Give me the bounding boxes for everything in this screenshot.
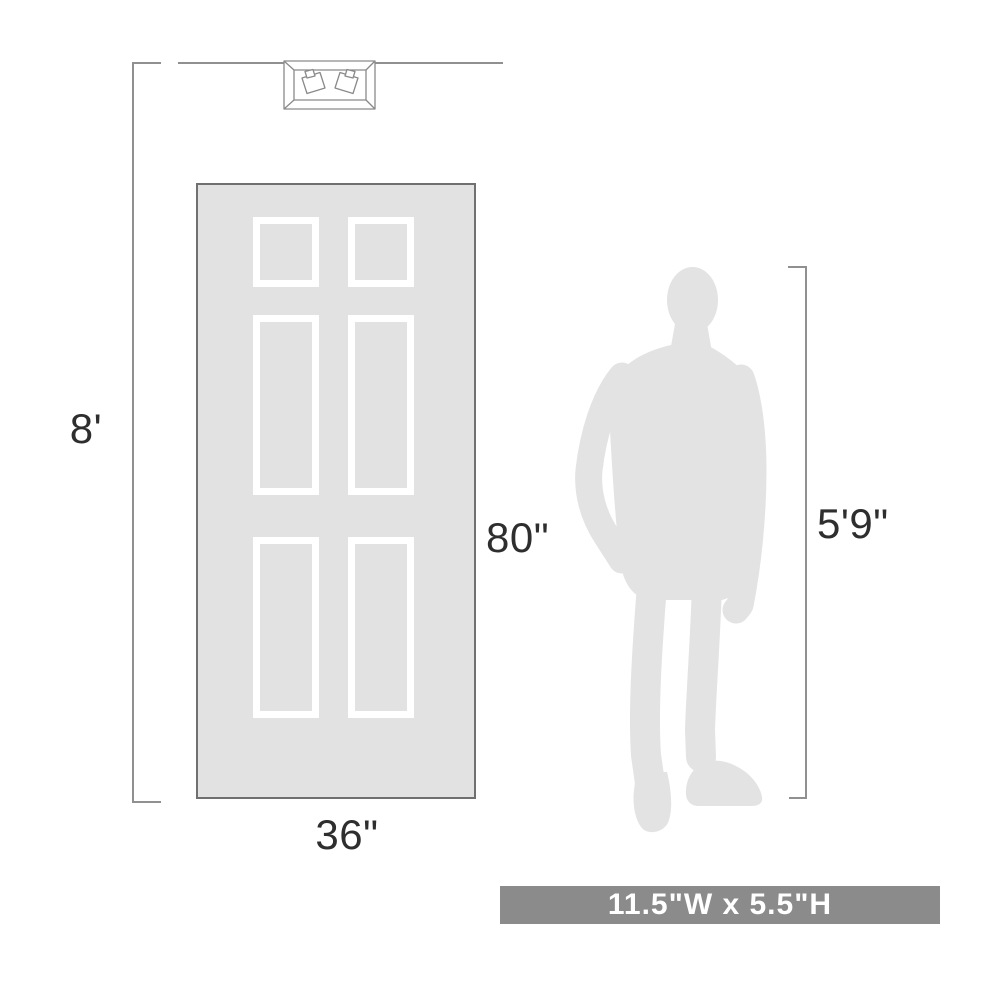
ceiling-height-label: 8' [36,408,136,450]
door-panel-top-left [253,217,319,287]
dimension-diagram: 8' 80" 36" 5'9" 11.5"W x 5.5"H [0,0,1000,1000]
ceiling-height-bracket [133,63,161,802]
door-panel-top-right [348,217,414,287]
door-panel-middle-left [253,315,319,495]
door-panel-bottom-left [253,537,319,718]
door-illustration [196,183,476,799]
person-front-shoe [686,761,762,806]
fixture-right-lamp-yoke [345,70,355,79]
ceiling-fixture-icon [284,61,375,109]
person-rear-shoe [633,772,671,832]
person-height-bracket [788,267,806,798]
door-height-label: 80" [486,517,549,559]
fixture-size-label: 11.5"W x 5.5"H [608,888,832,922]
person-silhouette [589,267,763,832]
person-height-label: 5'9" [817,503,889,545]
person-left-leg [645,585,652,790]
door-panel-middle-right [348,315,414,495]
door-panel-bottom-right [348,537,414,718]
door-width-label: 36" [297,814,397,856]
fixture-left-lamp-yoke [305,70,315,79]
fixture-size-banner: 11.5"W x 5.5"H [500,886,940,924]
person-right-leg [700,585,707,757]
